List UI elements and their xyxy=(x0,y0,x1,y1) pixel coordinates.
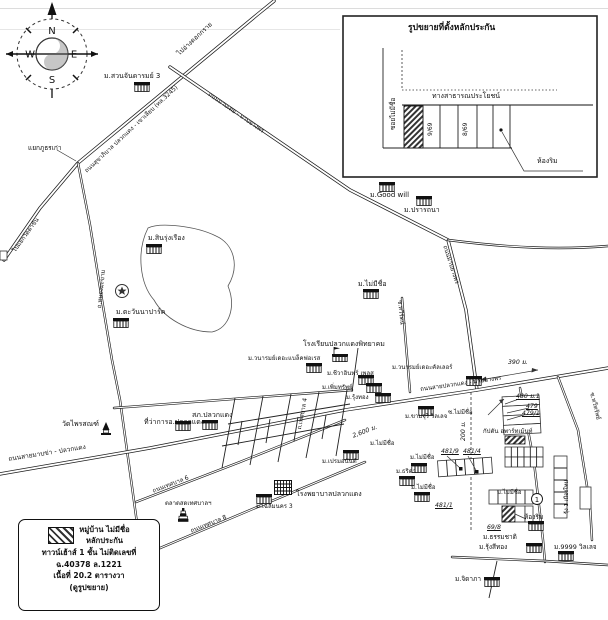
label-rungthong: ม.รุ้งทอง xyxy=(346,395,369,401)
label-sinrung: ม.สินรุ่งเรือง xyxy=(148,235,185,242)
collateral-hatch-swatch xyxy=(48,527,74,544)
town-street-grid xyxy=(222,348,358,468)
compass-west-label: W xyxy=(25,50,35,61)
compass-south-label: S xyxy=(49,75,55,86)
road-terminus-box xyxy=(0,251,7,260)
label-rung1: รุ้ง 1 เมืองใหม่ xyxy=(565,480,571,514)
compass-east-label: E xyxy=(71,50,77,61)
label-thecolor: ม.วนารมย์เดอะคัลเลอร์ xyxy=(392,365,452,371)
compass-north-label: N xyxy=(48,26,55,37)
inset-corner-room-label: ห้องริม xyxy=(537,158,558,165)
inset-title: รูปขยายที่ตั้งหลักประกัน xyxy=(408,24,495,33)
label-no-name-f: ม.ไม่มีชื่อ xyxy=(497,490,521,496)
inset-plot-9-69: 9/69 xyxy=(428,123,434,136)
hand-drawn-location-map: 1 N S E W xyxy=(0,0,608,620)
north-arrow xyxy=(48,2,57,15)
label-no-name-e: ม.ไม่มีชื่อ xyxy=(370,441,394,447)
label-thammachat: ม.ธรรมชาติ xyxy=(483,534,517,541)
road-highway-3245 xyxy=(0,1,274,260)
label-corner-room-map: ห้องริม xyxy=(524,514,543,521)
label-goodwill: ม.Good will xyxy=(370,192,409,199)
label-distance-390: 390 ม. xyxy=(508,360,528,366)
label-prattana: ม.ปรารถนา xyxy=(404,207,440,214)
inset-soi-label: ซอยไม่มีชื่อ xyxy=(390,98,397,130)
label-soi-no-name: ซ.ไม่มีชื่อ xyxy=(448,410,473,416)
label-house-69-8: 69/8 xyxy=(487,525,501,531)
plot-strip-mid-right xyxy=(505,447,543,467)
label-khamjuree: ม.ขามจุรี วิลเลจ xyxy=(405,414,447,420)
legend-see-enlargement: (ดูรูปขยาย) xyxy=(21,582,157,594)
label-chalermnakorn: ม.เฉลิมนคร 3 xyxy=(256,504,293,510)
label-school: โรงเรียนปลวกแดงพิทยาคม xyxy=(303,341,385,348)
label-captain-apartment: กัปตัน อพาร์ทเม้นท์ xyxy=(483,429,533,435)
label-no-name-a: ม.ไม่มีชื่อ xyxy=(358,281,387,288)
building-icon-jidapa xyxy=(484,577,500,587)
captain-apartment-building xyxy=(505,436,525,444)
building-icon-rungthong xyxy=(375,393,391,403)
legend-area: เนื้อที่ 20.2 ตารางวา xyxy=(21,570,157,582)
label-suanjan: ม.สวนจันดารมย์ 3 xyxy=(104,73,160,80)
tall-building-right-edge xyxy=(554,456,591,518)
building-icon-suanjan xyxy=(134,82,150,92)
road-left-vertical xyxy=(78,163,140,545)
school-flag-icon xyxy=(332,347,348,362)
label-jidapa: ม.จิดาภา xyxy=(455,576,481,583)
building-icon-no-name-a xyxy=(363,289,379,299)
temple-icon xyxy=(101,422,111,435)
label-house-481-4: 481/4 xyxy=(463,449,481,455)
label-market: ตลาดสดเทศบาลฯ xyxy=(165,501,211,507)
label-distance-200: 200 ม. xyxy=(461,421,467,441)
circled-number-text: 1 xyxy=(535,496,539,504)
legend-deed-number: ฉ.40378 ล.1221 xyxy=(21,559,157,571)
building-icon-sinrung xyxy=(146,244,162,254)
label-no-name-d: ม.ไม่มีชื่อ xyxy=(411,485,435,491)
inset-plot-8-69: 8/69 xyxy=(463,123,469,136)
label-house-479-1: 479/1 xyxy=(522,411,540,417)
building-icon-blackforest xyxy=(306,363,322,373)
building-icon-police xyxy=(202,420,218,430)
inset-public-way-label: ทางสาธารณประโยชน์ xyxy=(432,93,500,100)
label-tawanna: ม.ตะวันนาปาร์ค xyxy=(116,309,165,316)
label-rungseethong: ม.รุ้งสีทอง xyxy=(479,544,507,551)
label-blackforest: ม.วนารมย์เดอะแบล็คฟอเรส xyxy=(248,356,320,362)
label-9999-village: ม.9999 วิลเลจ xyxy=(554,544,597,551)
plot-strip-481 xyxy=(438,457,493,477)
roundabout-star-icon xyxy=(116,285,129,298)
label-premanan: ม.เปรมอนันต์ xyxy=(322,459,357,465)
building-icon-rungseethong xyxy=(526,543,542,553)
label-cheewain: ม.ชีวาอินทร์ เพลส xyxy=(327,371,374,377)
building-icon-permsap xyxy=(366,383,382,393)
building-icon-tawanna xyxy=(113,318,129,328)
collateral-hatched-plot xyxy=(502,506,515,522)
building-icon-no-name-d xyxy=(414,492,430,502)
label-house-481-1: 481/1 xyxy=(435,503,453,509)
compass-rose: N S E W xyxy=(6,2,98,98)
legend-village-no-name: หมู่บ้าน ไม่มีชื่อ xyxy=(79,524,129,535)
building-icon-no-name-f xyxy=(528,521,544,531)
inset-collateral-hatched-plot xyxy=(404,106,423,148)
label-house-480: 480 ม.1 xyxy=(516,394,540,400)
label-district-office: ที่ว่าการอ.ปลวกแดง xyxy=(144,419,204,426)
market-monument-icon xyxy=(178,508,188,522)
label-wat: วัดไพรสณฑ์ xyxy=(62,421,99,428)
label-thrida: ม.ธริดา xyxy=(396,469,416,475)
legend-box: หมู่บ้าน ไม่มีชื่อ หลักประกัน ทาวน์เฮ้าส… xyxy=(18,519,160,611)
label-junction: แยกภูธรเก่า xyxy=(28,145,61,152)
building-icon-prattana xyxy=(416,196,432,206)
label-soi-taweerat: ซ.ทวีรัตน์ xyxy=(396,300,405,325)
hospital-icon xyxy=(275,481,292,495)
building-icon-9999 xyxy=(558,551,574,561)
legend-townhouse: ทาวน์เฮ้าส์ 1 ชั้น ไม่ติดเลขที่ xyxy=(21,547,157,559)
label-no-name-c: ม.ไม่มีชื่อ xyxy=(410,455,434,461)
label-hospital: โรงพยาบาลปลวกแดง xyxy=(296,491,362,498)
label-house-481-9: 481/9 xyxy=(441,449,459,455)
legend-collateral: หลักประกัน xyxy=(79,535,129,546)
label-permsap: ม.เพิ่มทรัพย์ xyxy=(322,385,352,391)
